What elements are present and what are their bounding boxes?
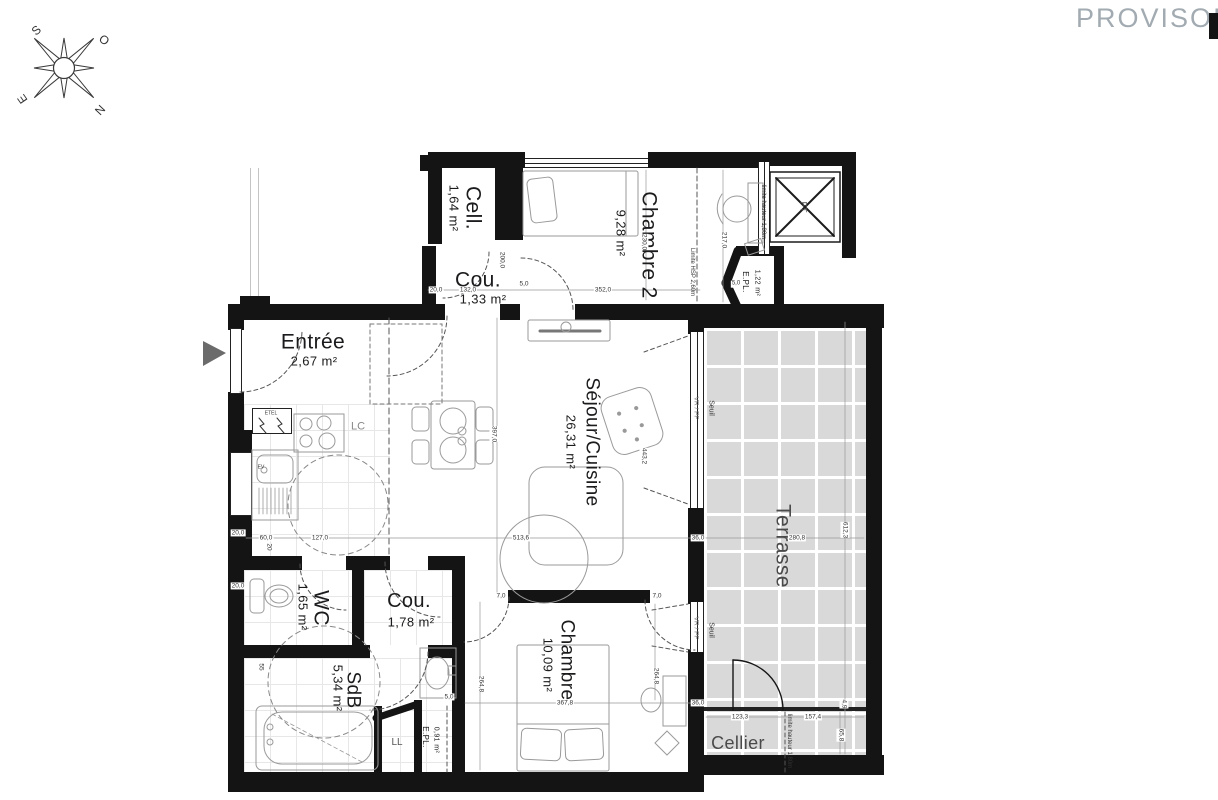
entrance-arrow — [203, 341, 226, 366]
vrpf-label: VR / PF — [692, 617, 699, 640]
dim: 127,0 — [311, 534, 329, 541]
etel-zigzag — [259, 418, 284, 433]
room-area-chambre2: 9,28 m² — [615, 210, 628, 257]
dim: 612,3 — [840, 522, 849, 538]
dim: 352,0 — [594, 286, 612, 293]
dim: 20,0 — [429, 286, 444, 293]
rug — [500, 515, 588, 603]
room-area-epl-bas: 0,91 m² — [433, 727, 440, 754]
room-label-sejour: Séjour/Cuisine — [583, 377, 602, 506]
limite-hauteur-label: limite hauteur 1,80m — [760, 185, 766, 239]
room-label-terrasse: Terrasse — [773, 504, 794, 588]
lc-label: LC — [351, 422, 365, 433]
dim: 4,9 — [839, 699, 848, 708]
dim: 60,0 — [259, 534, 274, 541]
wall-diagonal — [376, 704, 418, 718]
dim: 20 — [264, 543, 273, 550]
tv-unit — [528, 320, 610, 341]
room-label-cou-bas: Cou. — [387, 591, 431, 611]
dim: 367,8 — [556, 699, 574, 706]
dim: 264,8 — [651, 668, 660, 684]
room-area-wc: 1,65 m² — [297, 584, 310, 631]
seuil-label: Seuil — [708, 400, 715, 416]
dim: 280,8 — [788, 534, 806, 541]
room-label-cell: Cell. — [463, 186, 484, 230]
dim: 7,0 — [651, 592, 662, 599]
seuil-label: Seuil — [708, 622, 715, 638]
armchair — [598, 384, 666, 457]
sofa — [529, 467, 623, 565]
dim: 217,0 — [719, 232, 728, 248]
dim: 157,4 — [804, 713, 822, 720]
stove — [294, 414, 344, 452]
room-label-wc: WC — [311, 590, 332, 626]
ll-label: LL — [391, 738, 402, 748]
ft-label: FT — [799, 202, 808, 213]
plan-graphics — [0, 0, 1218, 800]
dim: 397,0 — [489, 426, 498, 442]
dim: 230,0 — [639, 234, 648, 250]
ev-label: EV — [258, 466, 265, 471]
dim: 123,3 — [731, 713, 749, 720]
dim: 20,0 — [231, 582, 246, 589]
room-label-entree: Entrée — [281, 332, 345, 353]
room-label-sdb: SdB — [344, 671, 363, 708]
room-label-cellier: Cellier — [711, 734, 765, 752]
dining-set — [412, 401, 493, 469]
dim: 513,6 — [512, 534, 530, 541]
desk-chair-chambre — [641, 676, 686, 755]
room-area-cell: 1,64 m² — [448, 185, 461, 232]
cellier-door — [733, 660, 783, 710]
dim: 55 — [256, 663, 265, 670]
room-label-epl-bas: E.PL. — [421, 726, 429, 748]
room-area-chambre: 10,09 m² — [542, 638, 555, 693]
dim: 443,2 — [639, 448, 648, 464]
kitchen-sink — [252, 450, 298, 520]
dim: 132,0 — [459, 286, 477, 293]
etel-label: ETEL — [265, 412, 278, 417]
room-area-sejour: 26,31 m² — [565, 415, 578, 470]
room-area-entree: 2,67 m² — [291, 355, 338, 368]
vrpf-label: VR / PF — [692, 397, 699, 420]
dim: 7,0 — [495, 592, 506, 599]
limite-hsp-label: Limite HSP 2,60m — [689, 248, 695, 296]
room-label-chambre: Chambre — [558, 620, 577, 701]
dim: 36,0 — [691, 699, 706, 706]
dim: 200,0 — [497, 252, 506, 268]
room-area-cou-haut: 1,33 m² — [460, 293, 507, 306]
dim: 5,0 — [443, 693, 454, 700]
room-label-epl-haut: E.PL. — [741, 271, 749, 293]
door-arcs — [240, 252, 695, 710]
dim: 20,0 — [231, 529, 246, 536]
room-area-cou-bas: 1,78 m² — [388, 616, 435, 629]
dim: 36,0 — [691, 534, 706, 541]
limite-hauteur-label: limite hauteur 1,80m — [786, 714, 792, 768]
dim: 5,0 — [518, 280, 529, 287]
dim: 5,0 — [731, 281, 741, 288]
room-area-sdb: 5,34 m² — [332, 665, 345, 712]
dim: 264,8 — [476, 676, 485, 692]
room-area-epl-haut: 1,22 m² — [754, 270, 761, 297]
toilet — [250, 579, 293, 613]
dim: 65,8 — [836, 729, 845, 742]
washbasin — [420, 648, 456, 698]
